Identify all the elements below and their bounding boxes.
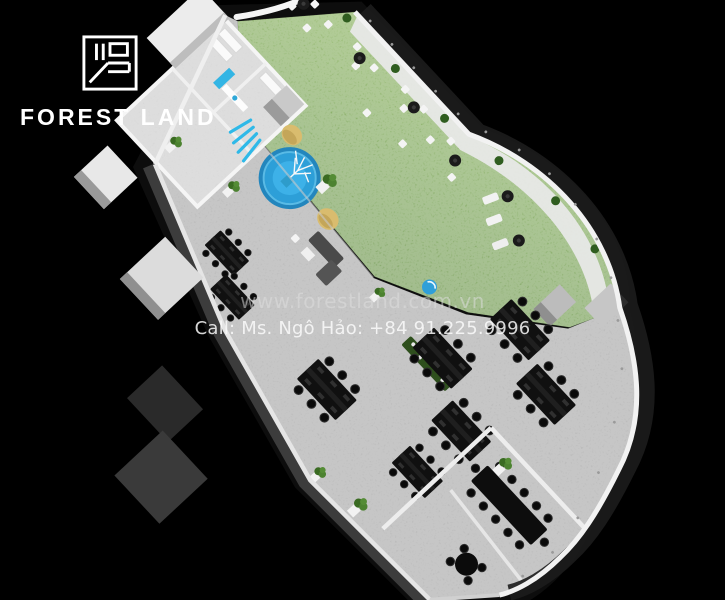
render-canvas: FOREST LAND www.forestland.com.vn Call: … [0,0,725,600]
forest-land-monogram-icon [81,34,139,92]
brand-logo: FOREST LAND [20,34,200,131]
brand-logo-text: FOREST LAND [20,104,200,131]
